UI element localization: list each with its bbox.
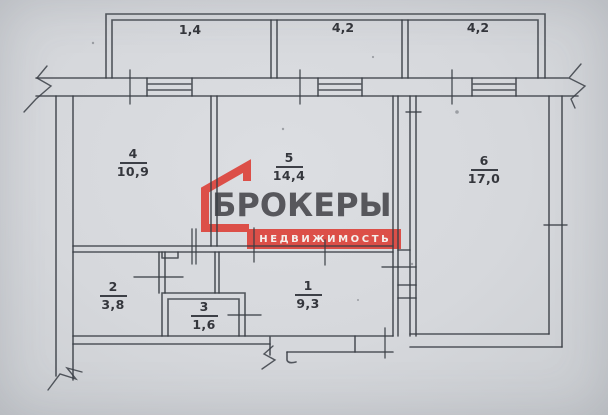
exterior-wall-right: [544, 96, 567, 347]
room-6-area: 17,0: [468, 172, 500, 185]
balcony-middle-area-label: 4,2: [322, 20, 364, 35]
room-4-number: 4: [129, 148, 138, 160]
balcony-right-area-label: 4,2: [457, 20, 499, 35]
balcony-door-marks: [130, 70, 452, 104]
exterior-wall-top: [36, 78, 578, 96]
room-3-label: 3 1,6: [179, 301, 229, 331]
room-3-area: 1,6: [192, 318, 215, 331]
room-2-area: 3,8: [101, 298, 124, 311]
room-1-area: 9,3: [296, 297, 319, 310]
room-6-number: 6: [480, 155, 489, 167]
interior-partitions: [73, 96, 393, 293]
room-5-number: 5: [285, 152, 294, 164]
wall-room1-room6: [393, 96, 421, 336]
floor-plan-drawing: [0, 0, 608, 415]
room-5-label: 5 14,4: [264, 152, 314, 182]
exterior-wall-left: [56, 96, 73, 380]
room-2-number: 2: [109, 281, 118, 293]
window-symbols: [147, 78, 516, 96]
room-1-number: 1: [304, 280, 313, 292]
break-marks: [24, 64, 585, 390]
room-4-label: 4 10,9: [108, 148, 158, 178]
room-3-number: 3: [200, 301, 209, 313]
room-2-label: 2 3,8: [88, 281, 138, 311]
room-5-area: 14,4: [273, 169, 305, 182]
room-1-label: 1 9,3: [283, 280, 333, 310]
room-4-area: 10,9: [117, 165, 149, 178]
exterior-wall-bottom: [73, 334, 562, 363]
floor-plan-photo: БРОКЕРЫ НЕДВИЖИМОСТЬ: [0, 0, 608, 415]
room-6-label: 6 17,0: [459, 155, 509, 185]
balcony-left-area-label: 1,4: [169, 22, 211, 37]
